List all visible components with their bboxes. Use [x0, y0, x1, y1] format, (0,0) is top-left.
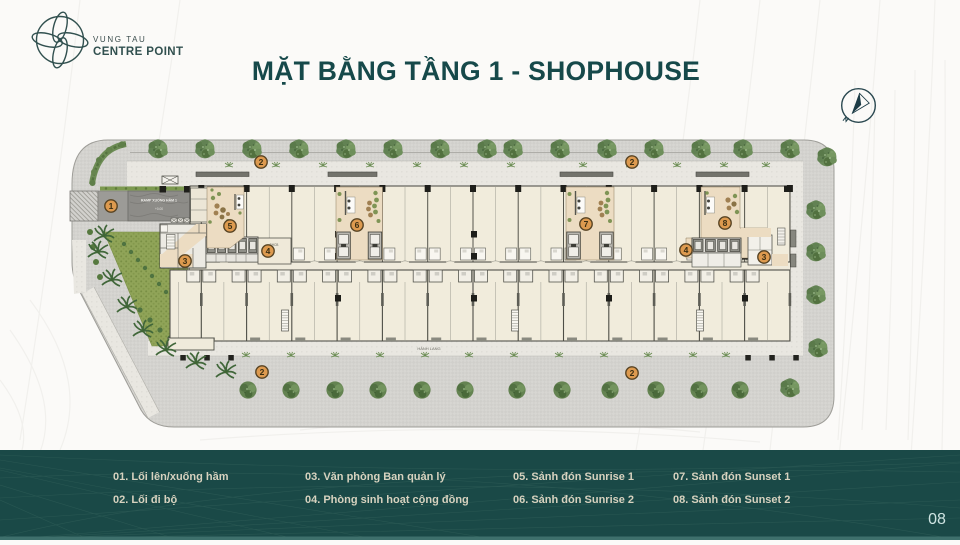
svg-text:06. Sảnh đón Sunrise 2: 06. Sảnh đón Sunrise 2: [513, 494, 634, 506]
svg-text:03. Văn phòng Ban quản lý: 03. Văn phòng Ban quản lý: [305, 471, 446, 483]
svg-text:CENTRE POINT: CENTRE POINT: [93, 46, 183, 58]
svg-text:8: 8: [723, 218, 728, 228]
svg-text:6: 6: [355, 220, 360, 230]
svg-text:2: 2: [260, 367, 265, 377]
svg-text:3: 3: [183, 256, 188, 266]
svg-text:1: 1: [109, 201, 114, 211]
svg-text:RAMP XUỐNG HẦM 1: RAMP XUỐNG HẦM 1: [141, 198, 177, 203]
svg-text:02. Lối đi bộ: 02. Lối đi bộ: [113, 494, 177, 506]
svg-text:+0.00: +0.00: [155, 207, 163, 211]
svg-text:4: 4: [684, 245, 689, 255]
svg-text:5: 5: [228, 221, 233, 231]
svg-text:08. Sảnh đón Sunset 2: 08. Sảnh đón Sunset 2: [673, 494, 790, 506]
svg-text:4: 4: [266, 246, 271, 256]
svg-text:05. Sảnh đón Sunrise 1: 05. Sảnh đón Sunrise 1: [513, 471, 634, 483]
svg-text:3: 3: [762, 252, 767, 262]
svg-text:07. Sảnh đón Sunset 1: 07. Sảnh đón Sunset 1: [673, 471, 790, 483]
svg-text:HÀNH LANG: HÀNH LANG: [417, 346, 440, 351]
svg-text:08: 08: [928, 511, 946, 528]
svg-text:2: 2: [630, 368, 635, 378]
svg-text:7: 7: [584, 219, 589, 229]
svg-text:2: 2: [630, 157, 635, 167]
svg-text:2: 2: [259, 157, 264, 167]
svg-text:MẶT BẰNG TẦNG 1 - SHOPHOUSE: MẶT BẰNG TẦNG 1 - SHOPHOUSE: [252, 56, 700, 86]
svg-text:04. Phòng sinh hoạt cộng đồng: 04. Phòng sinh hoạt cộng đồng: [305, 494, 469, 506]
svg-text:VUNG TAU: VUNG TAU: [93, 35, 146, 44]
svg-text:01. Lối lên/xuống hầm: 01. Lối lên/xuống hầm: [113, 471, 229, 483]
